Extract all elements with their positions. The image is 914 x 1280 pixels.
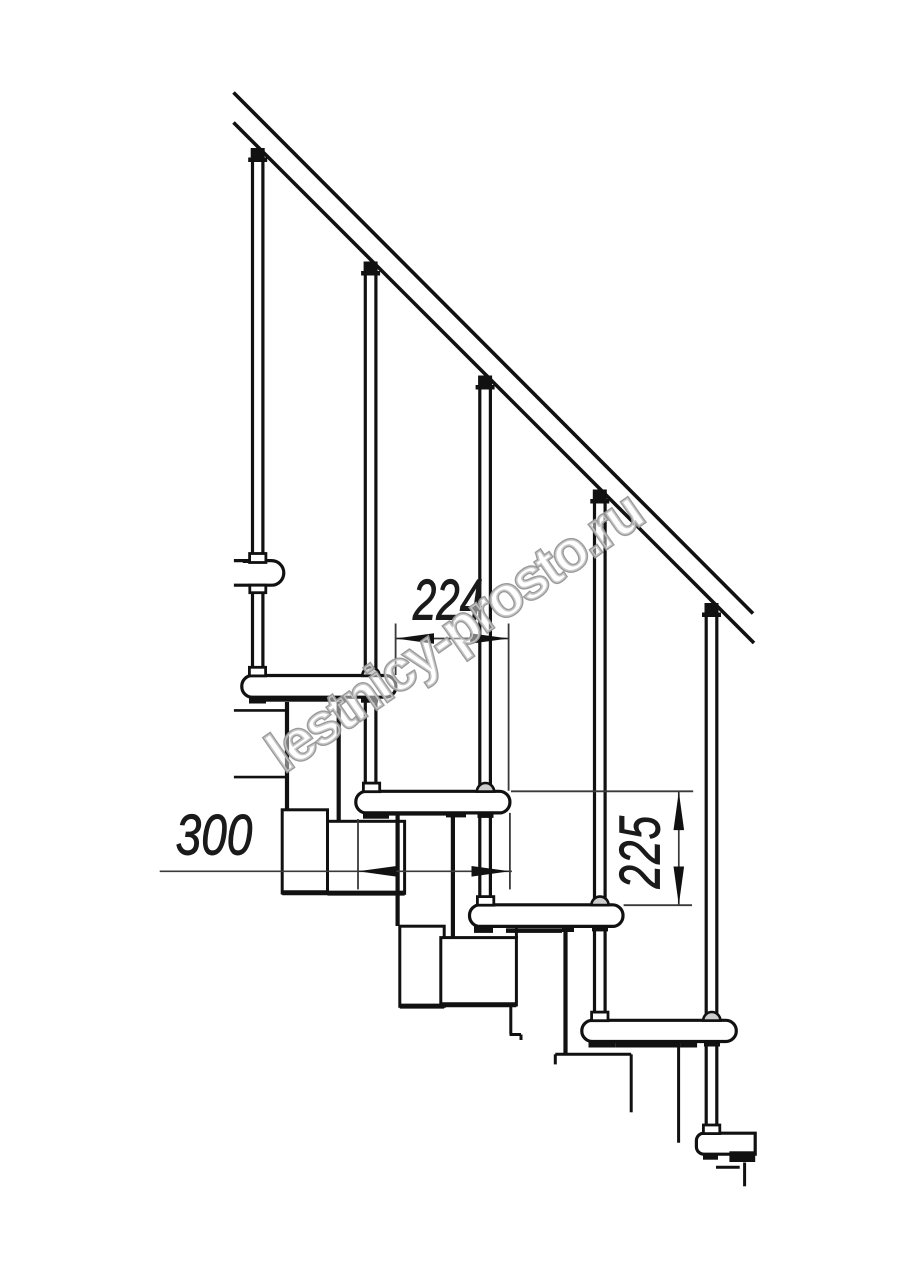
- svg-text:225: 225: [607, 815, 672, 889]
- svg-text:300: 300: [176, 804, 253, 868]
